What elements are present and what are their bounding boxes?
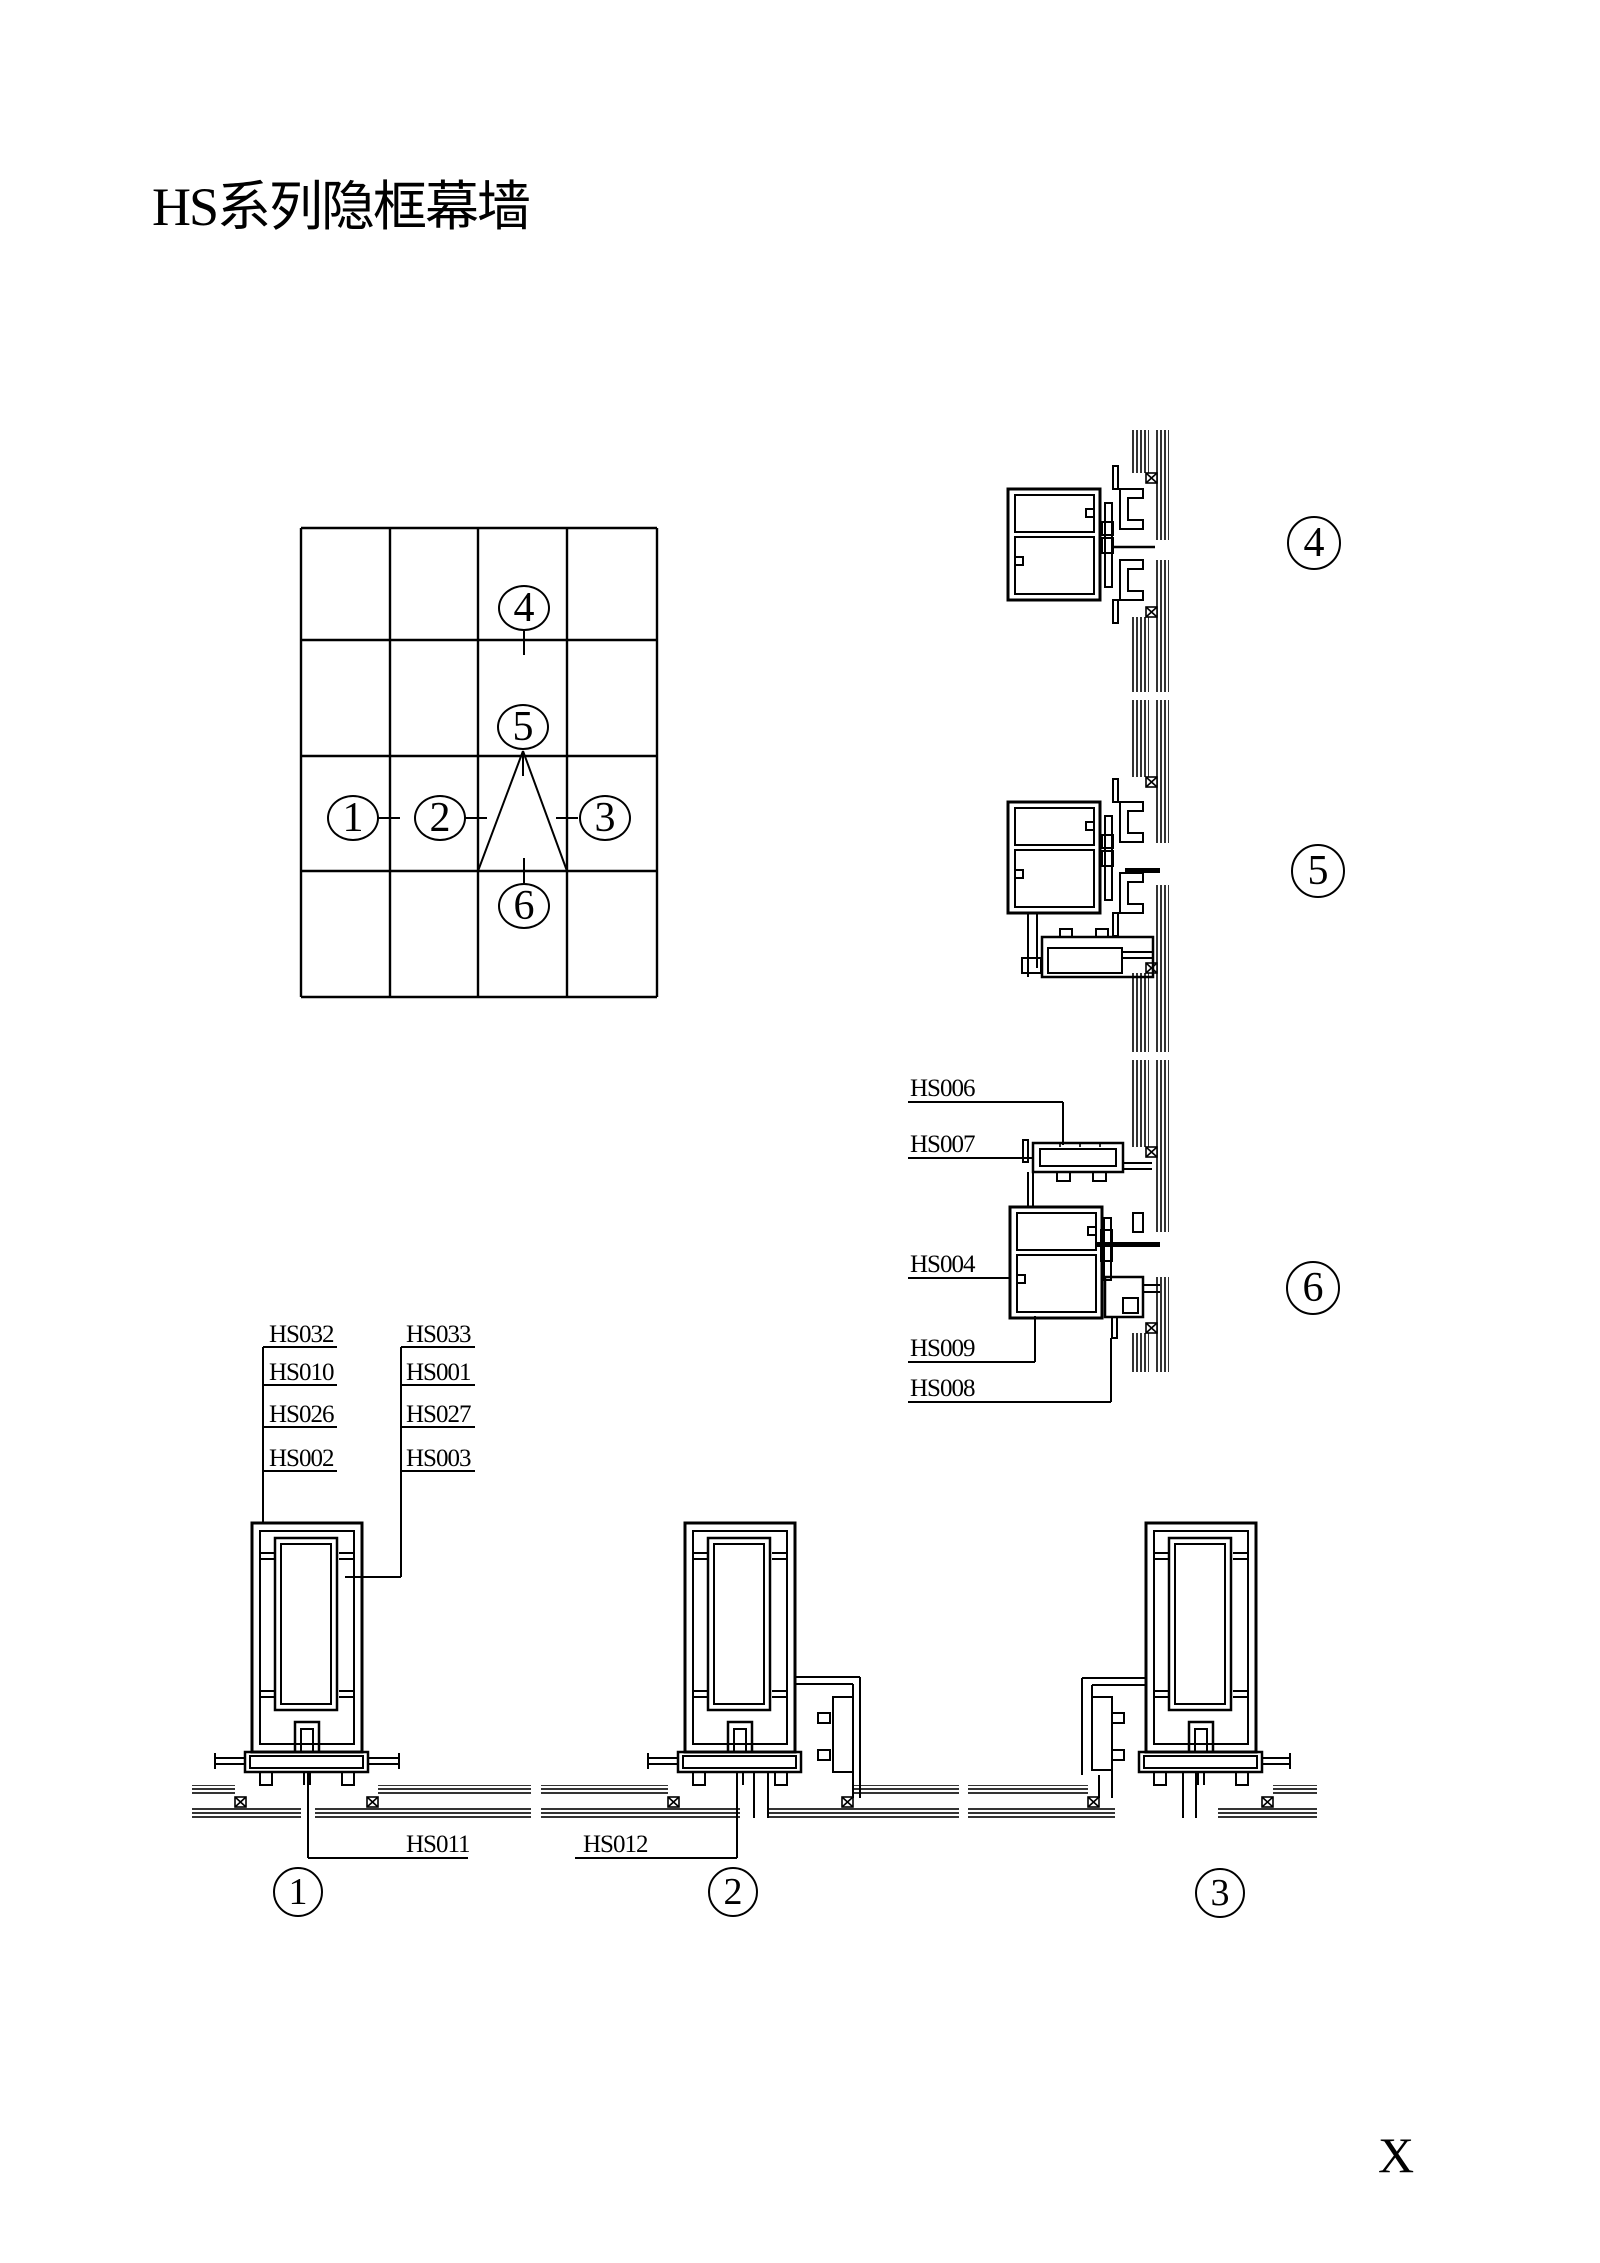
- part-label-hs008: HS008: [910, 1376, 974, 1401]
- part-label-hs003: HS003: [406, 1446, 470, 1471]
- section-5-linework: [1008, 779, 1160, 977]
- part-label-hs026: HS026: [269, 1402, 333, 1427]
- part-label-hs006: HS006: [910, 1076, 974, 1101]
- part-label-hs011: HS011: [406, 1832, 470, 1857]
- part-label-hs012: HS012: [583, 1832, 647, 1857]
- section-3-linework: [1082, 1523, 1290, 1818]
- sheet-letter: X: [1378, 2130, 1414, 2180]
- grid-callout-1: 1: [327, 795, 379, 841]
- drawing-title: HS系列隐框幕墙: [152, 162, 529, 241]
- section-4-linework: [1008, 466, 1155, 623]
- section-2-linework: [648, 1523, 860, 1818]
- section-marker-4: 4: [1287, 516, 1341, 570]
- part-label-hs001: HS001: [406, 1360, 470, 1385]
- grid-callout-6: 6: [498, 883, 550, 929]
- section-6-linework: [1010, 1140, 1160, 1338]
- section-marker-2: 2: [708, 1867, 758, 1917]
- section-marker-3: 3: [1195, 1868, 1245, 1918]
- part-label-hs010: HS010: [269, 1360, 333, 1385]
- vertical-glass-units: [1132, 430, 1169, 1372]
- part-label-hs002: HS002: [269, 1446, 333, 1471]
- grid-callout-5: 5: [497, 704, 549, 750]
- grid-callout-2: 2: [414, 795, 466, 841]
- drawing-linework: [0, 0, 1600, 2263]
- grid-callout-3: 3: [579, 795, 631, 841]
- part-label-hs027: HS027: [406, 1402, 470, 1427]
- part-label-hs009: HS009: [910, 1336, 974, 1361]
- section-marker-5: 5: [1291, 844, 1345, 898]
- part-label-hs007: HS007: [910, 1132, 974, 1157]
- grid-callout-4: 4: [498, 585, 550, 631]
- part-label-hs033: HS033: [406, 1322, 470, 1347]
- section-marker-6: 6: [1286, 1261, 1340, 1315]
- section-1-linework: [215, 1523, 399, 1785]
- leader-lines: [263, 1102, 1111, 1858]
- part-label-hs004: HS004: [910, 1252, 974, 1277]
- elevation-grid-lines: [301, 528, 657, 997]
- drawing-sheet: HS系列隐框幕墙 1 2 3 4 5 6 4 5 6 1 2 3 HS006 H…: [0, 0, 1600, 2263]
- part-label-hs032: HS032: [269, 1322, 333, 1347]
- section-marker-1: 1: [273, 1867, 323, 1917]
